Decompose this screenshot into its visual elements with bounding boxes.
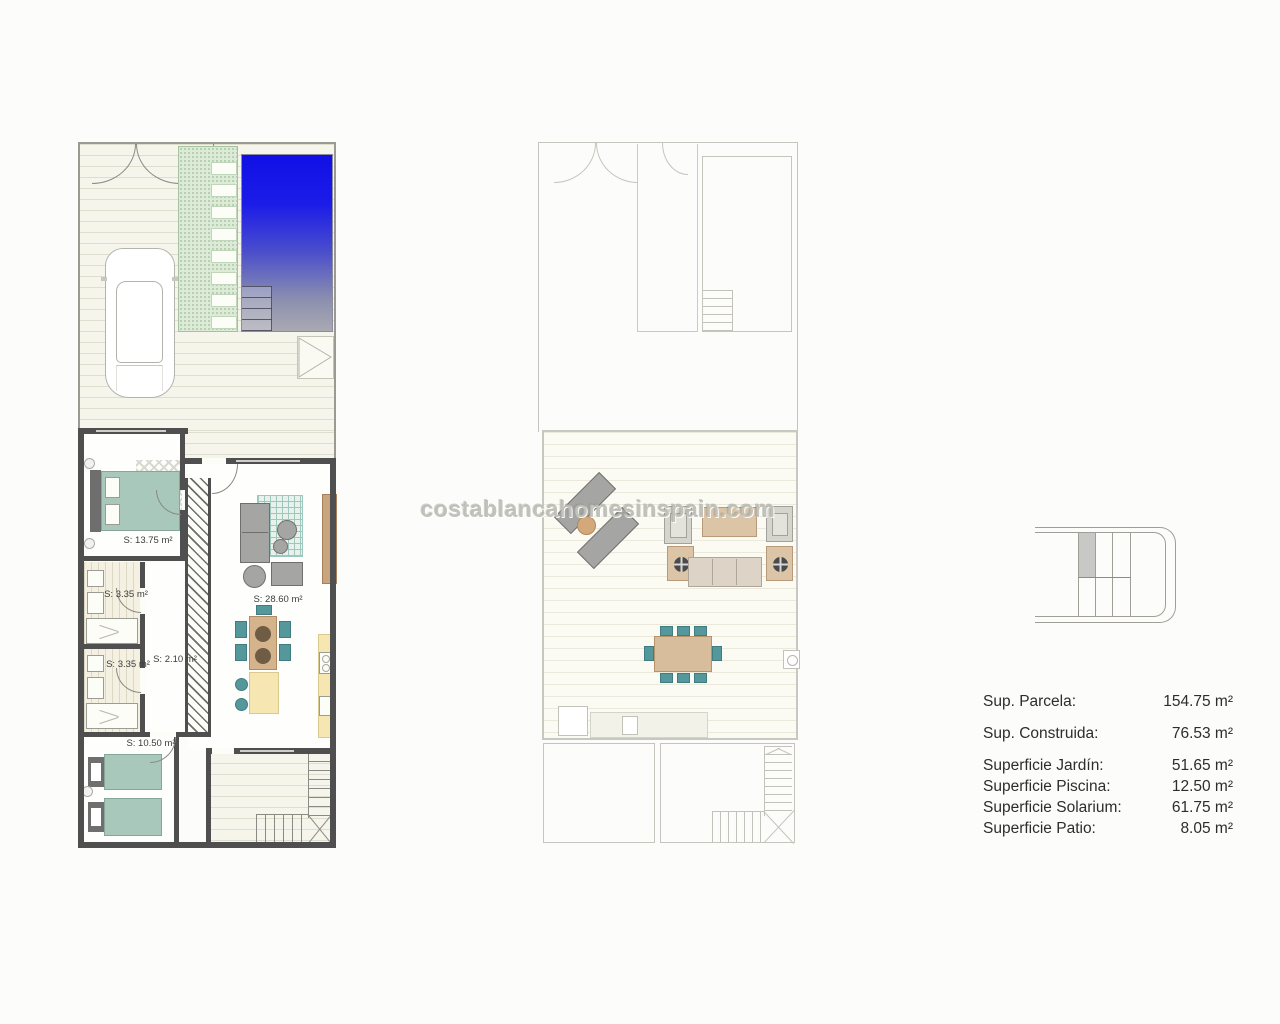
paver bbox=[211, 228, 237, 241]
watermark: costablancahomesinspain.com bbox=[420, 496, 776, 523]
chair bbox=[279, 644, 291, 661]
chair bbox=[660, 673, 673, 683]
firepit-table-icon bbox=[773, 557, 788, 572]
place-setting bbox=[255, 648, 271, 664]
paver bbox=[211, 294, 237, 307]
floor-plan-sheet: S: 13.75 m² S: 3.35 m² S: 3.35 m² S: 2.1… bbox=[0, 0, 1280, 1024]
shower bbox=[86, 703, 138, 729]
bed-mattress bbox=[104, 798, 162, 836]
stairs-detail-tread-line bbox=[1095, 533, 1096, 617]
wall-bedroom2-top bbox=[78, 732, 211, 737]
table-row: Sup. Parcela: 154.75 m² bbox=[983, 692, 1233, 711]
toilet bbox=[87, 677, 104, 699]
hob-burner bbox=[322, 664, 330, 672]
chair bbox=[644, 646, 654, 661]
wall-bedroom2-right bbox=[174, 737, 179, 847]
shower-mark bbox=[99, 625, 118, 632]
stairs-outline-upper bbox=[764, 746, 792, 816]
outdoor-sofa-center bbox=[688, 557, 762, 587]
bar-cabinet bbox=[558, 706, 588, 736]
wall-bedroom1-bottom bbox=[78, 556, 185, 561]
single-bed bbox=[88, 798, 162, 836]
garden-hatch-box bbox=[297, 336, 334, 379]
shower-mark bbox=[99, 717, 118, 724]
pillow bbox=[105, 504, 120, 525]
chair bbox=[279, 621, 291, 638]
paver bbox=[211, 162, 237, 175]
area-label: Superficie Solarium: bbox=[983, 798, 1122, 817]
patio-stairs-lower bbox=[256, 814, 308, 844]
bed-headboard bbox=[88, 757, 104, 787]
stairs-detail-shaded-tread bbox=[1079, 533, 1095, 577]
bathroom-sink bbox=[87, 655, 104, 672]
place-setting bbox=[255, 626, 271, 642]
stairs-outline-lower bbox=[712, 811, 764, 843]
bed-headboard bbox=[88, 802, 104, 832]
room-label-bathroom1: S: 3.35 m² bbox=[104, 589, 148, 600]
wall-fixture bbox=[783, 650, 800, 669]
paver bbox=[211, 250, 237, 263]
pool-steps-outline bbox=[703, 290, 733, 332]
sofa-cushion-line bbox=[736, 559, 737, 585]
room-label-bathroom2: S: 3.35 m² bbox=[104, 659, 152, 670]
stairs-detail-tread-line bbox=[1078, 533, 1079, 617]
staircase bbox=[185, 478, 211, 734]
car-mirror bbox=[101, 277, 107, 281]
kitchen-island bbox=[249, 672, 279, 714]
wall-right bbox=[330, 458, 336, 848]
hall bbox=[142, 562, 187, 734]
sofa bbox=[240, 503, 270, 563]
bar-counter bbox=[590, 712, 708, 738]
toilet bbox=[87, 592, 104, 614]
bar-sink bbox=[622, 716, 638, 735]
pouf bbox=[243, 565, 266, 588]
paver bbox=[211, 184, 237, 197]
area-label: Sup. Parcela: bbox=[983, 692, 1076, 711]
chair bbox=[235, 621, 247, 638]
solarium-floor-plan bbox=[538, 142, 802, 848]
nightstand-lamp bbox=[84, 538, 95, 549]
car-trunk bbox=[116, 365, 163, 391]
hob-burner bbox=[322, 655, 330, 663]
chair bbox=[256, 605, 272, 615]
pool-steps bbox=[242, 286, 272, 331]
area-label: Superficie Piscina: bbox=[983, 777, 1111, 796]
lower-room-outline bbox=[543, 743, 655, 843]
window bbox=[240, 750, 294, 752]
room-label-living: S: 28.60 m² bbox=[250, 594, 306, 605]
shower-mark bbox=[99, 710, 118, 717]
outdoor-armchair bbox=[766, 546, 793, 581]
area-label: Superficie Jardín: bbox=[983, 756, 1104, 775]
path-outline bbox=[637, 331, 698, 332]
chair bbox=[235, 644, 247, 661]
chair bbox=[694, 626, 707, 636]
area-value: 8.05 m² bbox=[1180, 819, 1233, 838]
area-value: 76.53 m² bbox=[1172, 724, 1233, 743]
wall-patio-left bbox=[206, 748, 211, 847]
paver bbox=[211, 316, 237, 329]
patio-stairs-upper bbox=[308, 752, 332, 818]
pillow bbox=[105, 477, 120, 498]
car-cabin bbox=[116, 281, 163, 363]
stool bbox=[235, 698, 248, 711]
outdoor-dining-table bbox=[654, 636, 712, 672]
chair bbox=[712, 646, 722, 661]
pillow bbox=[91, 763, 101, 781]
garden-deck-notch bbox=[184, 432, 336, 460]
pouf bbox=[277, 520, 297, 540]
stairs-detail-inner bbox=[1035, 532, 1166, 617]
bed-headboard bbox=[90, 470, 101, 532]
paver bbox=[211, 206, 237, 219]
room-label-hall: S: 2.10 m² bbox=[152, 654, 198, 665]
sofa-cushion-line bbox=[712, 559, 713, 585]
nightstand-lamp bbox=[84, 458, 95, 469]
areas-table: Sup. Parcela: 154.75 m² Sup. Construida:… bbox=[983, 692, 1233, 838]
armchair bbox=[271, 562, 303, 586]
area-value: 154.75 m² bbox=[1163, 692, 1233, 711]
stairs-detail bbox=[1035, 527, 1176, 623]
shower-mark bbox=[99, 632, 118, 639]
area-label: Sup. Construida: bbox=[983, 724, 1098, 743]
path-outline bbox=[697, 144, 698, 332]
area-value: 61.75 m² bbox=[1172, 798, 1233, 817]
stairs-detail-tread-line bbox=[1112, 533, 1113, 617]
table-row: Sup. Construida: 76.53 m² bbox=[983, 724, 1233, 743]
window bbox=[96, 430, 166, 432]
paver bbox=[211, 272, 237, 285]
sofa-cushion-line bbox=[242, 532, 268, 533]
table-row: Superficie Piscina: 12.50 m² bbox=[983, 777, 1233, 796]
chair bbox=[677, 626, 690, 636]
stairs-detail-mid-line bbox=[1078, 577, 1131, 578]
chair bbox=[677, 673, 690, 683]
table-row: Superficie Solarium: 61.75 m² bbox=[983, 798, 1233, 817]
fixture-circle bbox=[787, 655, 798, 666]
ground-floor-plan: S: 13.75 m² S: 3.35 m² S: 3.35 m² S: 2.1… bbox=[78, 142, 340, 848]
room-label-bedroom1: S: 13.75 m² bbox=[116, 535, 180, 546]
area-label: Superficie Patio: bbox=[983, 819, 1096, 838]
room-label-bedroom2: S: 10.50 m² bbox=[122, 738, 180, 749]
stairs-detail-tread-line bbox=[1130, 533, 1131, 617]
window bbox=[236, 460, 300, 462]
wall-left bbox=[78, 428, 84, 848]
pillow bbox=[91, 808, 101, 826]
pouf bbox=[273, 539, 288, 554]
area-value: 12.50 m² bbox=[1172, 777, 1233, 796]
area-value: 51.65 m² bbox=[1172, 756, 1233, 775]
car bbox=[105, 248, 175, 398]
path-outline bbox=[637, 144, 638, 332]
table-row: Superficie Jardín: 51.65 m² bbox=[983, 756, 1233, 775]
wall-between-bathrooms bbox=[78, 644, 142, 649]
chair bbox=[660, 626, 673, 636]
patio-door-opening bbox=[212, 748, 234, 754]
chair bbox=[694, 673, 707, 683]
stool bbox=[235, 678, 248, 691]
table-row: Superficie Patio: 8.05 m² bbox=[983, 819, 1233, 838]
firepit-table-icon bbox=[674, 557, 689, 572]
bathroom-sink bbox=[87, 570, 104, 587]
shower bbox=[86, 618, 138, 644]
